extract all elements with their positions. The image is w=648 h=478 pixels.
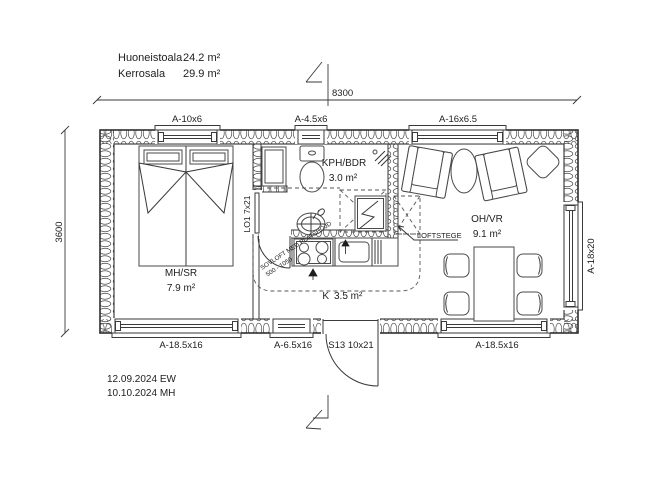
- double-bed: [139, 146, 233, 266]
- window-bottom-left-label: A-18.5x16: [159, 340, 202, 351]
- bedroom-kitchen-wall: [253, 232, 259, 319]
- dining-chair: [517, 254, 542, 277]
- window-top-left-label: A-10x6: [172, 114, 202, 125]
- kitchen-name: K: [322, 291, 329, 302]
- armchair-left: [401, 146, 452, 199]
- window-right-label: A-18x20: [586, 238, 597, 273]
- window-top-right: A-16x6.5: [409, 114, 506, 144]
- window-bottom-right-label: A-18.5x16: [475, 340, 518, 351]
- section-marker-bottom: [306, 395, 328, 429]
- living-room-name: OH/VR: [471, 214, 503, 225]
- entry-door: S13 10x21: [321, 318, 380, 386]
- window-top-mid: A-4.5x6: [295, 114, 328, 144]
- revision-dates: 12.09.2024 EW 10.10.2024 MH: [107, 374, 176, 399]
- window-top-mid-label: A-4.5x6: [295, 114, 328, 125]
- bathroom-area: 3.0 m²: [329, 173, 358, 184]
- revision-date-1: 12.09.2024 EW: [107, 374, 176, 385]
- bedroom-area: 7.9 m²: [167, 283, 196, 294]
- kitchen-area: 3.5 m²: [334, 291, 363, 302]
- dining-table: [474, 247, 514, 321]
- armchair-right: [475, 147, 528, 201]
- dimension-top-value: 8300: [332, 88, 353, 99]
- area-table: Huoneistoala 24.2 m² Kerrosala 29.9 m²: [118, 52, 221, 80]
- dining-chair: [517, 292, 542, 315]
- sliding-door-label: LO1 7x21: [242, 195, 252, 232]
- living-room-area: 9.1 m²: [473, 229, 502, 240]
- coffee-table: [451, 149, 477, 193]
- window-top-right-label: A-16x6.5: [439, 114, 477, 125]
- dimension-left: 3600: [54, 126, 69, 337]
- floor-plan-sheet: Huoneistoala 24.2 m² Kerrosala 29.9 m² 1…: [0, 0, 648, 478]
- bedroom: MH/SR 7.9 m²: [139, 146, 233, 294]
- loft-ladder: LOFTSTEGE: [394, 196, 462, 240]
- kerrosala-value: 29.9 m²: [183, 68, 221, 80]
- section-marker-top: [306, 62, 328, 106]
- huoneistoala-value: 24.2 m²: [183, 52, 221, 64]
- entry-door-label: S13 10x21: [328, 340, 373, 351]
- dimension-top: 8300: [93, 88, 581, 104]
- sliding-door: LO1 7x21: [242, 190, 262, 234]
- stove-connection-arrow: [309, 269, 317, 280]
- window-top-left: A-10x6: [155, 114, 220, 144]
- revision-date-2: 10.10.2024 MH: [107, 388, 175, 399]
- window-right: A-18x20: [561, 202, 597, 310]
- dimension-left-value: 3600: [54, 221, 65, 242]
- loft-ladder-label: LOFTSTEGE: [417, 231, 462, 240]
- floor-plan-svg: Huoneistoala 24.2 m² Kerrosala 29.9 m² 1…: [0, 0, 648, 478]
- pouf: [525, 144, 562, 181]
- bedroom-name: MH/SR: [165, 268, 197, 279]
- dining-chair: [444, 292, 469, 315]
- water-heater: [355, 196, 386, 231]
- window-bottom-left: A-18.5x16: [112, 318, 241, 351]
- window-bottom-mid-label: A-6.5x16: [274, 340, 312, 351]
- dining-chair: [444, 254, 469, 277]
- toilet: [300, 146, 324, 192]
- window-bottom-mid: A-6.5x16: [270, 318, 313, 351]
- huoneistoala-label: Huoneistoala: [118, 52, 183, 64]
- bedroom-bathroom-wall: [253, 144, 261, 190]
- kerrosala-label: Kerrosala: [118, 68, 166, 80]
- window-bottom-right: A-18.5x16: [438, 318, 550, 351]
- bathroom-name: KPH/BDR: [322, 158, 366, 169]
